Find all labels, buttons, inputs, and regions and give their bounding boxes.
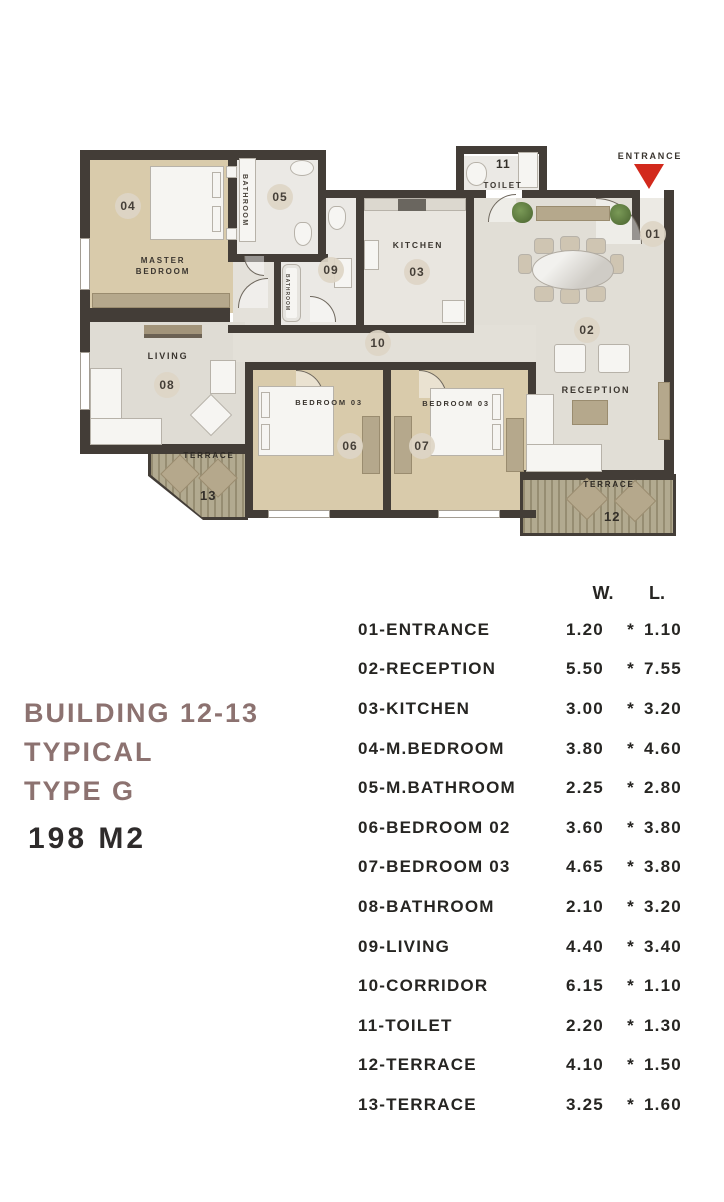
bed-pillow [212,172,221,198]
dimension-row: 04-M.BEDROOM3.80*4.60 [358,729,698,769]
armchair [598,344,630,373]
wall [364,190,466,198]
dimension-cell-star: * [618,857,644,877]
dimension-cell-lab: 12-TERRACE [358,1055,566,1075]
room-label-kitchen: KITCHEN [385,240,451,250]
dimension-cell-star: * [618,1095,644,1115]
dimension-cell-l: 1.10 [644,620,696,640]
dimension-cell-w: 6.15 [566,976,618,996]
dimension-cell-w: 1.20 [566,620,618,640]
room-badge-04: 04 [115,193,141,219]
room-label-reception: RECEPTION [556,385,636,395]
dimension-cell-l: 3.20 [644,897,696,917]
dimension-cell-w: 2.25 [566,778,618,798]
dimension-cell-w: 3.80 [566,739,618,759]
header-length: L. [626,583,688,604]
dining-chair [518,254,532,274]
room-number-11: 11 [496,157,511,171]
dimension-cell-star: * [618,739,644,759]
dimension-cell-l: 3.40 [644,937,696,957]
wall [547,190,640,198]
sideboard [536,206,610,221]
room-label-terrace-13: TERRACE [178,451,240,460]
room-label-terrace-12: TERRACE [578,480,640,489]
dimension-cell-lab: 02-RECEPTION [358,659,566,679]
dimension-cell-l: 1.50 [644,1055,696,1075]
kitchen-sink [398,199,426,211]
wall [245,362,253,518]
title-line-1: BUILDING 12-13 [24,694,259,733]
dimension-cell-star: * [618,620,644,640]
wardrobe [92,293,230,308]
fridge [442,300,465,323]
dimension-cell-l: 1.10 [644,976,696,996]
dimension-row: 07-BEDROOM 034.65*3.80 [358,848,698,888]
dimension-cell-w: 3.00 [566,699,618,719]
room-number-12: 12 [604,509,620,524]
dimension-cell-star: * [618,659,644,679]
wall [466,190,474,333]
dimension-row: 08-BATHROOM2.10*3.20 [358,887,698,927]
dimension-row: 01-ENTRANCE1.20*1.10 [358,610,698,650]
window [438,510,500,518]
tv-console [144,325,202,338]
dimensions-table-rows: 01-ENTRANCE1.20*1.1002-RECEPTION5.50*7.5… [358,610,698,1125]
dimension-cell-star: * [618,699,644,719]
dimension-row: 03-KITCHEN3.00*3.20 [358,689,698,729]
toilet [294,222,312,246]
wall [274,262,281,325]
dimensions-table: W. L. 01-ENTRANCE1.20*1.1002-RECEPTION5.… [358,576,698,1125]
wall [80,308,230,322]
dining-chair [560,288,580,304]
room-badge-08: 08 [154,372,180,398]
dimension-cell-w: 5.50 [566,659,618,679]
wall [80,150,322,160]
dimension-cell-lab: 13-TERRACE [358,1095,566,1115]
dimension-cell-star: * [618,1016,644,1036]
dimension-row: 05-M.BATHROOM2.25*2.80 [358,768,698,808]
plant [512,202,533,223]
dimension-cell-lab: 05-M.BATHROOM [358,778,566,798]
room-badge-10: 10 [365,330,391,356]
dimensions-table-header: W. L. [358,576,698,610]
room-badge-02: 02 [574,317,600,343]
dimension-cell-lab: 03-KITCHEN [358,699,566,719]
door-panel [658,382,670,440]
dining-chair [534,286,554,302]
dimension-cell-lab: 04-M.BEDROOM [358,739,566,759]
room-badge-07: 07 [409,433,435,459]
dimension-row: 13-TERRACE3.25*1.60 [358,1085,698,1125]
window [80,352,90,410]
dimension-cell-lab: 01-ENTRANCE [358,620,566,640]
dimension-cell-w: 4.65 [566,857,618,877]
dimension-cell-lab: 10-CORRIDOR [358,976,566,996]
dimension-cell-l: 3.20 [644,699,696,719]
room-label-master-bathroom: BATHROOM [241,158,248,242]
room-badge-01: 01 [640,221,666,247]
room-badge-06: 06 [337,433,363,459]
dining-table [532,250,614,290]
dimension-cell-lab: 09-LIVING [358,937,566,957]
toilet [328,206,346,230]
dimension-cell-l: 3.80 [644,818,696,838]
dining-chair [534,238,554,254]
room-number-13: 13 [200,488,216,503]
title-line-3: TYPE G [24,772,259,811]
wall [318,150,326,262]
room-label-living: LIVING [138,351,198,361]
coffee-table [572,400,608,425]
floor-plan-page: ENTRANCE 01 02 03 04 05 06 07 08 09 10 1… [0,0,724,1202]
dimension-cell-lab: 06-BEDROOM 02 [358,818,566,838]
dimension-cell-w: 4.10 [566,1055,618,1075]
entrance-arrow-icon [634,164,664,189]
room-badge-09: 09 [318,257,344,283]
title-block: BUILDING 12-13 TYPICAL TYPE G [24,694,259,811]
wardrobe [506,418,524,472]
sofa [526,444,602,472]
dimension-cell-w: 3.25 [566,1095,618,1115]
dimension-cell-l: 7.55 [644,659,696,679]
plant [610,204,631,225]
dimension-cell-w: 4.40 [566,937,618,957]
entrance-label: ENTRANCE [612,151,688,161]
wall [356,190,364,333]
wall [228,254,328,262]
dimension-cell-l: 1.60 [644,1095,696,1115]
dimension-cell-star: * [618,976,644,996]
bed-pillow [261,392,270,418]
dimension-cell-lab: 11-TOILET [358,1016,566,1036]
dimension-row: 12-TERRACE4.10*1.50 [358,1046,698,1086]
dimension-cell-star: * [618,937,644,957]
room-badge-05: 05 [267,184,293,210]
dimension-cell-w: 3.60 [566,818,618,838]
sink [290,160,314,176]
armchair [210,360,236,394]
nightstand [226,166,237,178]
dimension-row: 09-LIVING4.40*3.40 [358,927,698,967]
wall [456,190,486,198]
header-width: W. [580,583,626,604]
nightstand [226,228,237,240]
room-label-bedroom-06: BEDROOM 03 [283,398,375,407]
dimension-row: 02-RECEPTION5.50*7.55 [358,650,698,690]
dimension-row: 11-TOILET2.20*1.30 [358,1006,698,1046]
dimension-cell-l: 1.30 [644,1016,696,1036]
dimension-cell-lab: 08-BATHROOM [358,897,566,917]
wardrobe [362,416,380,474]
dimension-cell-lab: 07-BEDROOM 03 [358,857,566,877]
room-label-bathroom-09: BATHROOM [284,267,290,319]
dimension-cell-w: 2.10 [566,897,618,917]
dimension-cell-star: * [618,778,644,798]
room-label-bedroom-07: BEDROOM 03 [410,399,502,408]
dimension-cell-l: 4.60 [644,739,696,759]
sofa [90,418,162,445]
room-label-master-bedroom: MASTER BEDROOM [113,255,213,277]
dimension-cell-l: 2.80 [644,778,696,798]
dimension-row: 06-BEDROOM 023.60*3.80 [358,808,698,848]
armchair [554,344,586,373]
bed-pillow [212,206,221,232]
area-label: 198 M2 [28,822,146,856]
wall [383,362,391,510]
bed-pillow [261,424,270,450]
dimension-cell-l: 3.80 [644,857,696,877]
window [80,238,90,290]
window [268,510,330,518]
dimension-cell-star: * [618,1055,644,1075]
title-line-2: TYPICAL [24,733,259,772]
dimension-cell-star: * [618,897,644,917]
dimension-cell-w: 2.20 [566,1016,618,1036]
dimension-row: 10-CORRIDOR6.15*1.10 [358,966,698,1006]
wall [228,325,474,333]
room-badge-03: 03 [404,259,430,285]
wall [522,190,547,198]
room-label-toilet: TOILET [476,181,530,190]
bed-pillow [492,424,501,450]
dimension-cell-star: * [618,818,644,838]
stove [364,240,379,270]
